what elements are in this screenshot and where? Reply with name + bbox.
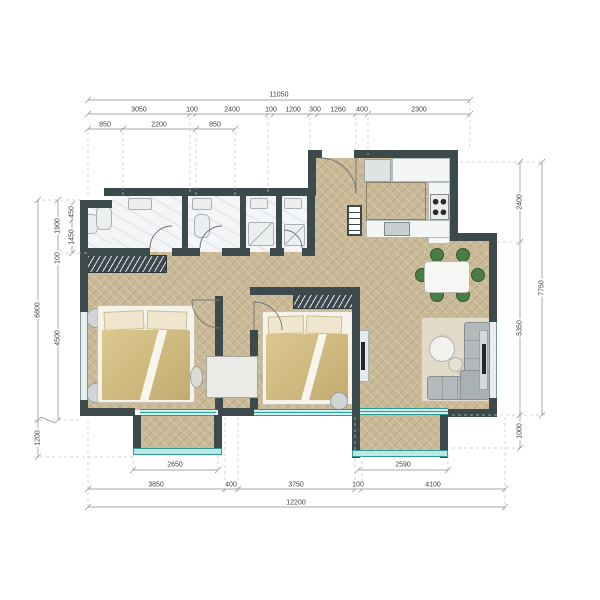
door-arcs	[150, 158, 356, 330]
dim-right: 1000	[517, 422, 524, 440]
entry-door-arc	[320, 158, 356, 194]
bath-door-arc	[150, 226, 172, 248]
bath-door-arc	[200, 226, 222, 248]
dim-top: 850	[98, 122, 112, 129]
dim-bottom: 100	[351, 482, 365, 489]
dim-left: 450	[69, 205, 76, 219]
dim-right: 7750	[539, 279, 546, 297]
dim-right: 2400	[517, 193, 524, 211]
bath-door-arc	[284, 230, 302, 248]
dim-right: 5350	[517, 319, 524, 337]
dim-bottom: 2650	[166, 462, 184, 469]
dim-top-overall: 11050	[269, 92, 290, 99]
dim-left: 1450	[69, 228, 76, 246]
dim-top: 850	[208, 122, 222, 129]
dim-top: 100	[264, 107, 278, 114]
dim-left: 1200	[35, 429, 42, 447]
dim-top: 1260	[329, 107, 347, 114]
dim-bottom: 4100	[424, 482, 442, 489]
dim-top: 300	[308, 107, 322, 114]
dim-bottom-overall: 12200	[285, 500, 306, 507]
dim-top: 3050	[130, 107, 148, 114]
dim-bottom: 3750	[287, 482, 305, 489]
dimension-lines	[35, 97, 545, 510]
dim-left: 100	[55, 251, 62, 265]
dim-bottom: 3850	[147, 482, 165, 489]
left-bedroom-door-arc	[192, 300, 220, 328]
dim-left: 1900	[55, 217, 62, 235]
dim-bottom: 400	[224, 482, 238, 489]
dim-top: 2400	[223, 107, 241, 114]
extension-lines	[34, 102, 546, 510]
dim-top: 1200	[284, 107, 302, 114]
dim-left: 4500	[55, 329, 62, 347]
dim-line-left-outer	[35, 197, 41, 460]
dim-bottom: 2590	[394, 462, 412, 469]
dim-top: 2300	[410, 107, 428, 114]
dim-top: 2200	[150, 122, 168, 129]
dim-left: 6800	[35, 301, 42, 319]
dim-top: 100	[185, 107, 199, 114]
middle-bedroom-door-arc	[254, 302, 282, 330]
plan-lines-layer	[0, 0, 600, 600]
floor-plan-canvas: 11050 3050 100 2400 100 1200 300 1260 40…	[0, 0, 600, 600]
dim-top: 400	[355, 107, 369, 114]
